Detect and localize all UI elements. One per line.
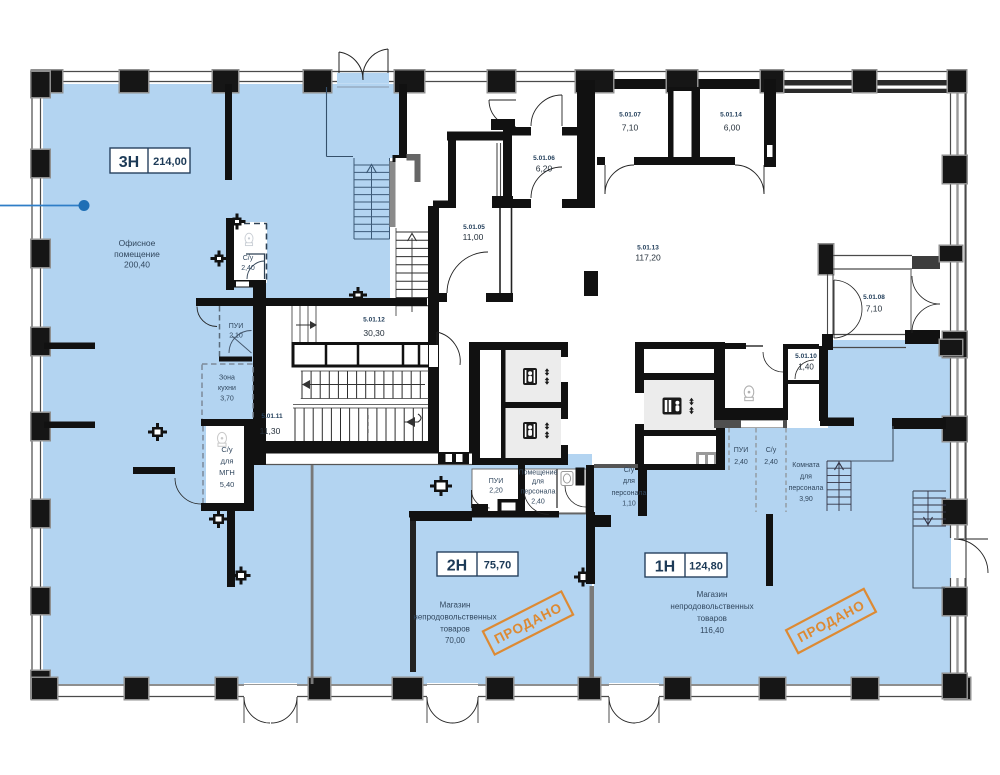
svg-text:1Н: 1Н — [655, 559, 675, 576]
svg-text:5,40: 5,40 — [220, 480, 235, 489]
svg-text:С/у: С/у — [624, 467, 635, 474]
svg-text:для: для — [221, 457, 234, 466]
svg-text:2,10: 2,10 — [229, 333, 243, 340]
svg-text:116,40: 116,40 — [700, 626, 724, 635]
svg-text:непродовольственных: непродовольственных — [670, 602, 753, 611]
svg-text:МГН: МГН — [219, 468, 235, 477]
svg-text:3,90: 3,90 — [799, 496, 813, 503]
svg-text:товаров: товаров — [697, 614, 727, 623]
svg-text:6,00: 6,00 — [724, 123, 741, 133]
svg-text:кухни: кухни — [218, 385, 236, 392]
svg-text:С/у: С/у — [243, 255, 254, 262]
svg-text:Помещение: Помещение — [519, 470, 558, 477]
svg-text:3,70: 3,70 — [220, 396, 234, 403]
svg-text:5.01.06: 5.01.06 — [533, 155, 555, 162]
svg-text:1,10: 1,10 — [622, 501, 636, 508]
svg-text:5.01.10: 5.01.10 — [795, 353, 817, 360]
svg-text:7,10: 7,10 — [866, 304, 883, 314]
svg-text:2,40: 2,40 — [764, 459, 778, 466]
svg-text:5.01.13: 5.01.13 — [637, 245, 659, 252]
svg-text:6,20: 6,20 — [536, 164, 553, 174]
svg-text:5.01.05: 5.01.05 — [463, 224, 485, 231]
svg-text:ПУИ: ПУИ — [489, 478, 504, 485]
svg-text:75,70: 75,70 — [484, 560, 512, 572]
svg-text:11,00: 11,00 — [463, 232, 484, 242]
svg-text:2Н: 2Н — [447, 558, 467, 575]
svg-text:5.01.11: 5.01.11 — [261, 413, 283, 420]
svg-text:117,20: 117,20 — [635, 253, 661, 263]
svg-text:214,00: 214,00 — [153, 156, 187, 168]
svg-text:ПУИ: ПУИ — [734, 447, 749, 454]
svg-text:Комната: Комната — [792, 462, 820, 469]
svg-text:7,10: 7,10 — [622, 123, 639, 133]
svg-text:персонала: персонала — [521, 489, 556, 496]
svg-text:для: для — [800, 474, 812, 481]
svg-text:5.01.14: 5.01.14 — [720, 112, 742, 119]
svg-text:Зона: Зона — [219, 375, 235, 382]
svg-text:непродовольственных: непродовольственных — [413, 613, 496, 622]
svg-text:Магазин: Магазин — [697, 590, 728, 599]
svg-text:для: для — [623, 478, 635, 485]
svg-text:Офисное: Офисное — [119, 238, 156, 248]
svg-text:30,30: 30,30 — [363, 328, 385, 338]
svg-text:С/у: С/у — [766, 447, 777, 454]
svg-text:1,40: 1,40 — [798, 363, 814, 372]
svg-text:200,40: 200,40 — [124, 260, 150, 270]
svg-text:5.01.08: 5.01.08 — [863, 294, 885, 301]
svg-text:Магазин: Магазин — [440, 601, 471, 610]
svg-text:3Н: 3Н — [119, 154, 139, 171]
svg-text:2,20: 2,20 — [489, 488, 503, 495]
svg-text:2,40: 2,40 — [734, 459, 748, 466]
svg-text:5.01.07: 5.01.07 — [619, 112, 641, 119]
svg-text:11,30: 11,30 — [260, 426, 281, 436]
svg-text:С/у: С/у — [221, 445, 233, 454]
svg-text:помещение: помещение — [114, 249, 160, 259]
svg-text:товаров: товаров — [440, 625, 470, 634]
svg-text:персонала: персонала — [612, 490, 647, 497]
svg-text:для: для — [532, 479, 544, 486]
svg-text:2,40: 2,40 — [531, 499, 545, 506]
svg-text:ПУИ: ПУИ — [229, 323, 244, 330]
svg-text:2,40: 2,40 — [241, 265, 255, 272]
svg-text:персонала: персонала — [789, 485, 824, 492]
svg-text:70,00: 70,00 — [445, 636, 466, 645]
svg-text:124,80: 124,80 — [689, 561, 723, 573]
svg-text:5.01.12: 5.01.12 — [363, 317, 385, 324]
